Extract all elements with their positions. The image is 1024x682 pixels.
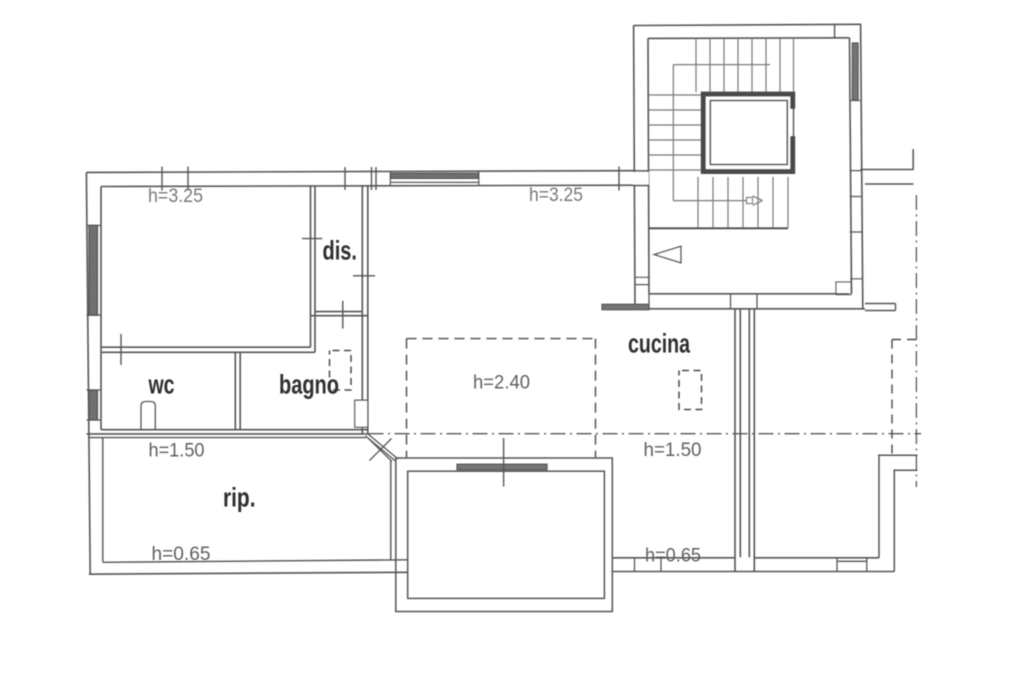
- svg-text:h=1.50: h=1.50: [149, 440, 205, 462]
- svg-text:h=1.50: h=1.50: [644, 439, 702, 461]
- svg-text:h=0.65: h=0.65: [152, 543, 211, 565]
- svg-text:h=2.40: h=2.40: [473, 372, 530, 394]
- svg-text:cucina: cucina: [628, 329, 691, 359]
- svg-text:dis.: dis.: [323, 236, 358, 266]
- svg-text:h=0.65: h=0.65: [645, 545, 701, 567]
- svg-text:wc: wc: [148, 370, 175, 400]
- svg-text:rip.: rip.: [223, 483, 256, 513]
- svg-text:h=3.25: h=3.25: [148, 185, 203, 207]
- svg-text:bagno: bagno: [279, 370, 339, 400]
- svg-text:h=3.25: h=3.25: [529, 184, 583, 206]
